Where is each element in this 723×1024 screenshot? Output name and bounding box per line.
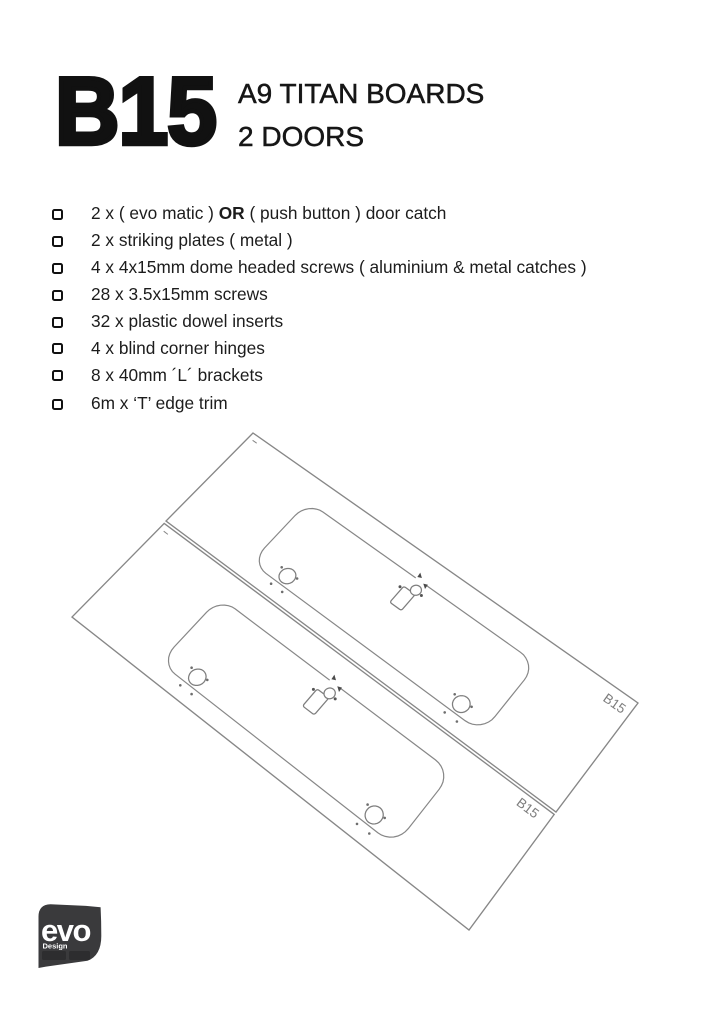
svg-text:Design: Design: [43, 942, 68, 951]
